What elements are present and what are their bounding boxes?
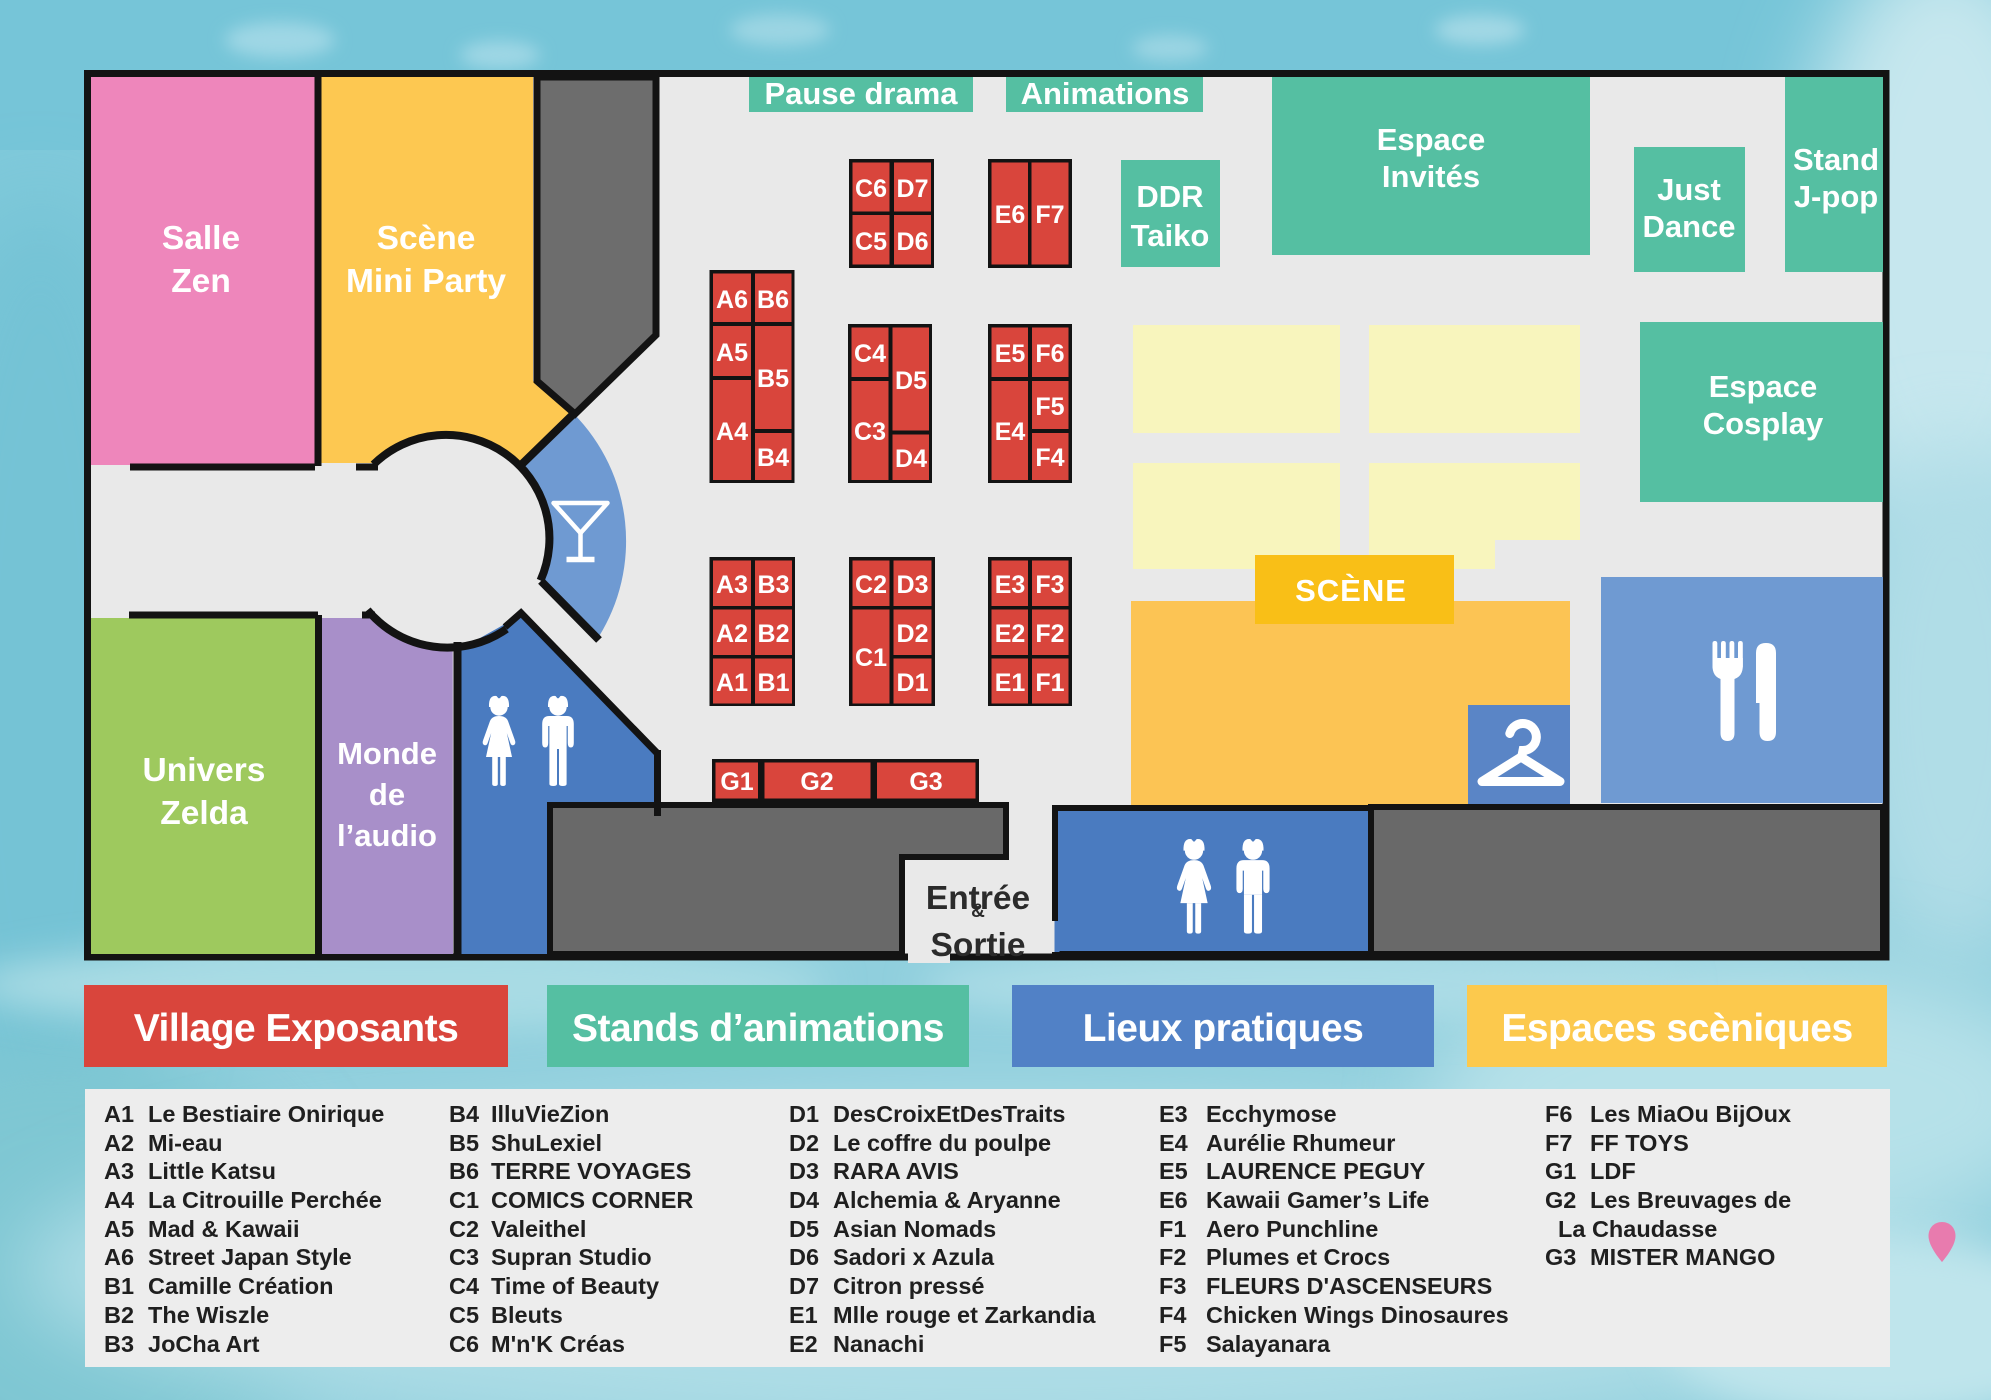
- svg-text:E1: E1: [789, 1302, 818, 1328]
- svg-text:C2: C2: [855, 571, 887, 599]
- svg-text:C2: C2: [449, 1216, 479, 1242]
- svg-text:D1: D1: [789, 1101, 819, 1127]
- svg-text:La Citrouille Perchée: La Citrouille Perchée: [148, 1187, 382, 1213]
- svg-text:E6: E6: [1159, 1187, 1188, 1213]
- svg-text:D4: D4: [789, 1187, 819, 1213]
- svg-text:Nanachi: Nanachi: [833, 1331, 924, 1357]
- svg-text:Les MiaOu BijOux: Les MiaOu BijOux: [1590, 1101, 1791, 1127]
- svg-text:FF TOYS: FF TOYS: [1590, 1130, 1689, 1156]
- svg-text:Plumes et Crocs: Plumes et Crocs: [1206, 1244, 1390, 1270]
- svg-text:D7: D7: [897, 175, 929, 203]
- svg-text:A3: A3: [716, 571, 748, 599]
- svg-text:C6: C6: [449, 1331, 479, 1357]
- svg-text:DDR: DDR: [1136, 179, 1203, 214]
- svg-text:C6: C6: [855, 175, 887, 203]
- svg-text:Scène: Scène: [377, 220, 476, 257]
- svg-text:B1: B1: [104, 1273, 134, 1299]
- svg-text:Monde: Monde: [337, 736, 437, 771]
- svg-text:F7: F7: [1035, 201, 1064, 229]
- svg-text:Village Exposants: Village Exposants: [134, 1007, 459, 1050]
- svg-text:Little Katsu: Little Katsu: [148, 1158, 276, 1184]
- svg-text:A1: A1: [104, 1101, 134, 1127]
- svg-text:Pause drama: Pause drama: [765, 76, 959, 111]
- svg-text:D2: D2: [789, 1130, 819, 1156]
- svg-text:Salayanara: Salayanara: [1206, 1331, 1331, 1357]
- svg-text:Kawaii Gamer’s Life: Kawaii Gamer’s Life: [1206, 1187, 1429, 1213]
- svg-text:E3: E3: [995, 571, 1026, 599]
- svg-text:Taiko: Taiko: [1131, 218, 1210, 253]
- svg-text:F1: F1: [1035, 669, 1064, 697]
- svg-text:B2: B2: [758, 620, 790, 648]
- svg-text:&: &: [971, 901, 985, 922]
- svg-text:Asian Nomads: Asian Nomads: [833, 1216, 996, 1242]
- svg-text:D3: D3: [789, 1158, 819, 1184]
- svg-text:G1: G1: [720, 768, 753, 796]
- svg-text:La Chaudasse: La Chaudasse: [1558, 1216, 1717, 1242]
- svg-text:B6: B6: [449, 1158, 479, 1184]
- svg-text:FLEURS D'ASCENSEURS: FLEURS D'ASCENSEURS: [1206, 1273, 1492, 1299]
- svg-text:Le coffre du poulpe: Le coffre du poulpe: [833, 1130, 1051, 1156]
- svg-text:G1: G1: [1545, 1158, 1576, 1184]
- svg-text:l’audio: l’audio: [337, 818, 437, 853]
- svg-text:E6: E6: [995, 201, 1026, 229]
- svg-text:A4: A4: [716, 418, 748, 446]
- svg-text:Mini Party: Mini Party: [346, 263, 506, 300]
- svg-text:Ecchymose: Ecchymose: [1206, 1101, 1337, 1127]
- svg-text:Dance: Dance: [1642, 209, 1735, 244]
- svg-text:B5: B5: [757, 365, 789, 393]
- svg-text:A2: A2: [104, 1130, 134, 1156]
- svg-text:Espace: Espace: [1709, 369, 1818, 404]
- svg-text:F5: F5: [1159, 1331, 1186, 1357]
- svg-text:Lieux pratiques: Lieux pratiques: [1083, 1007, 1364, 1050]
- svg-text:E5: E5: [995, 340, 1026, 368]
- svg-text:The Wiszle: The Wiszle: [148, 1302, 269, 1328]
- svg-text:Aurélie Rhumeur: Aurélie Rhumeur: [1206, 1130, 1395, 1156]
- svg-text:A5: A5: [104, 1216, 134, 1242]
- svg-text:Mlle rouge et Zarkandia: Mlle rouge et Zarkandia: [833, 1302, 1096, 1328]
- svg-text:B5: B5: [449, 1130, 479, 1156]
- svg-text:F2: F2: [1159, 1244, 1186, 1270]
- svg-text:F7: F7: [1545, 1130, 1572, 1156]
- svg-text:Bleuts: Bleuts: [491, 1302, 563, 1328]
- svg-text:C1: C1: [855, 644, 887, 672]
- svg-text:D6: D6: [897, 228, 929, 256]
- svg-text:G2: G2: [1545, 1187, 1576, 1213]
- svg-text:A4: A4: [104, 1187, 134, 1213]
- svg-text:G3: G3: [909, 768, 942, 796]
- svg-text:D3: D3: [897, 571, 929, 599]
- svg-text:E2: E2: [789, 1331, 818, 1357]
- svg-text:LDF: LDF: [1590, 1158, 1636, 1184]
- svg-text:Sortie: Sortie: [931, 927, 1026, 964]
- svg-text:C3: C3: [854, 418, 886, 446]
- svg-text:B1: B1: [758, 669, 790, 697]
- svg-text:LAURENCE PEGUY: LAURENCE PEGUY: [1206, 1158, 1426, 1184]
- svg-text:M'n'K Créas: M'n'K Créas: [491, 1331, 625, 1357]
- svg-text:Zelda: Zelda: [160, 795, 248, 832]
- svg-text:Zen: Zen: [171, 263, 231, 300]
- svg-text:RARA AVIS: RARA AVIS: [833, 1158, 959, 1184]
- svg-text:Valeithel: Valeithel: [491, 1216, 586, 1242]
- svg-text:Mad & Kawaii: Mad & Kawaii: [148, 1216, 299, 1242]
- svg-text:Mi-eau: Mi-eau: [148, 1130, 222, 1156]
- svg-text:A1: A1: [716, 669, 748, 697]
- svg-text:F1: F1: [1159, 1216, 1186, 1242]
- svg-text:Aero Punchline: Aero Punchline: [1206, 1216, 1378, 1242]
- svg-text:C3: C3: [449, 1244, 479, 1270]
- svg-text:A6: A6: [716, 286, 748, 314]
- svg-text:G3: G3: [1545, 1244, 1576, 1270]
- svg-text:F4: F4: [1035, 444, 1064, 472]
- svg-text:Espace: Espace: [1377, 122, 1486, 157]
- svg-text:de: de: [369, 777, 405, 812]
- svg-text:Citron pressé: Citron pressé: [833, 1273, 985, 1299]
- svg-text:MISTER MANGO: MISTER MANGO: [1590, 1244, 1775, 1270]
- svg-text:Animations: Animations: [1021, 76, 1190, 111]
- svg-text:Salle: Salle: [162, 220, 240, 257]
- svg-text:E4: E4: [995, 418, 1026, 446]
- svg-text:DesCroixEtDesTraits: DesCroixEtDesTraits: [833, 1101, 1066, 1127]
- svg-text:F6: F6: [1545, 1101, 1572, 1127]
- svg-text:D5: D5: [895, 367, 927, 395]
- svg-text:F3: F3: [1035, 571, 1064, 599]
- svg-text:A6: A6: [104, 1244, 134, 1270]
- svg-text:ShuLexiel: ShuLexiel: [491, 1130, 602, 1156]
- svg-text:TERRE VOYAGES: TERRE VOYAGES: [491, 1158, 691, 1184]
- svg-text:B3: B3: [104, 1331, 134, 1357]
- svg-text:Cosplay: Cosplay: [1703, 406, 1824, 441]
- svg-text:Time of Beauty: Time of Beauty: [491, 1273, 659, 1299]
- svg-text:F6: F6: [1035, 340, 1064, 368]
- svg-text:C4: C4: [449, 1273, 479, 1299]
- svg-text:Univers: Univers: [143, 752, 266, 789]
- svg-text:B4: B4: [757, 444, 789, 472]
- svg-text:Invités: Invités: [1382, 159, 1480, 194]
- svg-text:Street Japan Style: Street Japan Style: [148, 1244, 352, 1270]
- svg-text:D1: D1: [897, 669, 929, 697]
- svg-text:B4: B4: [449, 1101, 479, 1127]
- svg-text:F5: F5: [1035, 393, 1064, 421]
- svg-text:Chicken Wings Dinosaures: Chicken Wings Dinosaures: [1206, 1302, 1509, 1328]
- svg-text:Stands d’animations: Stands d’animations: [572, 1007, 944, 1050]
- svg-text:E5: E5: [1159, 1158, 1188, 1184]
- svg-text:B2: B2: [104, 1302, 134, 1328]
- svg-text:J-pop: J-pop: [1794, 179, 1878, 214]
- svg-text:D5: D5: [789, 1216, 819, 1242]
- svg-text:JoCha Art: JoCha Art: [148, 1331, 260, 1357]
- svg-text:COMICS CORNER: COMICS CORNER: [491, 1187, 693, 1213]
- svg-text:D6: D6: [789, 1244, 819, 1270]
- svg-text:A5: A5: [716, 339, 748, 367]
- svg-text:A2: A2: [716, 620, 748, 648]
- svg-text:Sadori x Azula: Sadori x Azula: [833, 1244, 995, 1270]
- svg-text:Les Breuvages de: Les Breuvages de: [1590, 1187, 1791, 1213]
- svg-text:B6: B6: [757, 286, 789, 314]
- svg-text:D2: D2: [897, 620, 929, 648]
- svg-text:B3: B3: [758, 571, 790, 599]
- svg-text:E2: E2: [995, 620, 1026, 648]
- svg-text:Alchemia & Aryanne: Alchemia & Aryanne: [833, 1187, 1061, 1213]
- svg-text:A3: A3: [104, 1158, 134, 1184]
- svg-text:Just: Just: [1657, 172, 1721, 207]
- svg-text:E4: E4: [1159, 1130, 1188, 1156]
- svg-text:C4: C4: [854, 340, 886, 368]
- svg-text:C5: C5: [855, 228, 887, 256]
- svg-text:F3: F3: [1159, 1273, 1186, 1299]
- svg-text:Stand: Stand: [1793, 142, 1879, 177]
- svg-text:SCÈNE: SCÈNE: [1295, 573, 1407, 608]
- svg-text:E3: E3: [1159, 1101, 1188, 1127]
- svg-text:IlluVieZion: IlluVieZion: [491, 1101, 609, 1127]
- svg-text:Camille Création: Camille Création: [148, 1273, 333, 1299]
- svg-text:C5: C5: [449, 1302, 479, 1328]
- svg-text:D4: D4: [895, 445, 927, 473]
- svg-text:Le Bestiaire Onirique: Le Bestiaire Onirique: [148, 1101, 384, 1127]
- svg-text:C1: C1: [449, 1187, 479, 1213]
- svg-text:Supran Studio: Supran Studio: [491, 1244, 652, 1270]
- svg-text:D7: D7: [789, 1273, 819, 1299]
- svg-text:Espaces scèniques: Espaces scèniques: [1501, 1007, 1852, 1050]
- svg-text:F2: F2: [1035, 620, 1064, 648]
- svg-text:E1: E1: [995, 669, 1026, 697]
- svg-text:G2: G2: [800, 768, 833, 796]
- svg-text:F4: F4: [1159, 1302, 1186, 1328]
